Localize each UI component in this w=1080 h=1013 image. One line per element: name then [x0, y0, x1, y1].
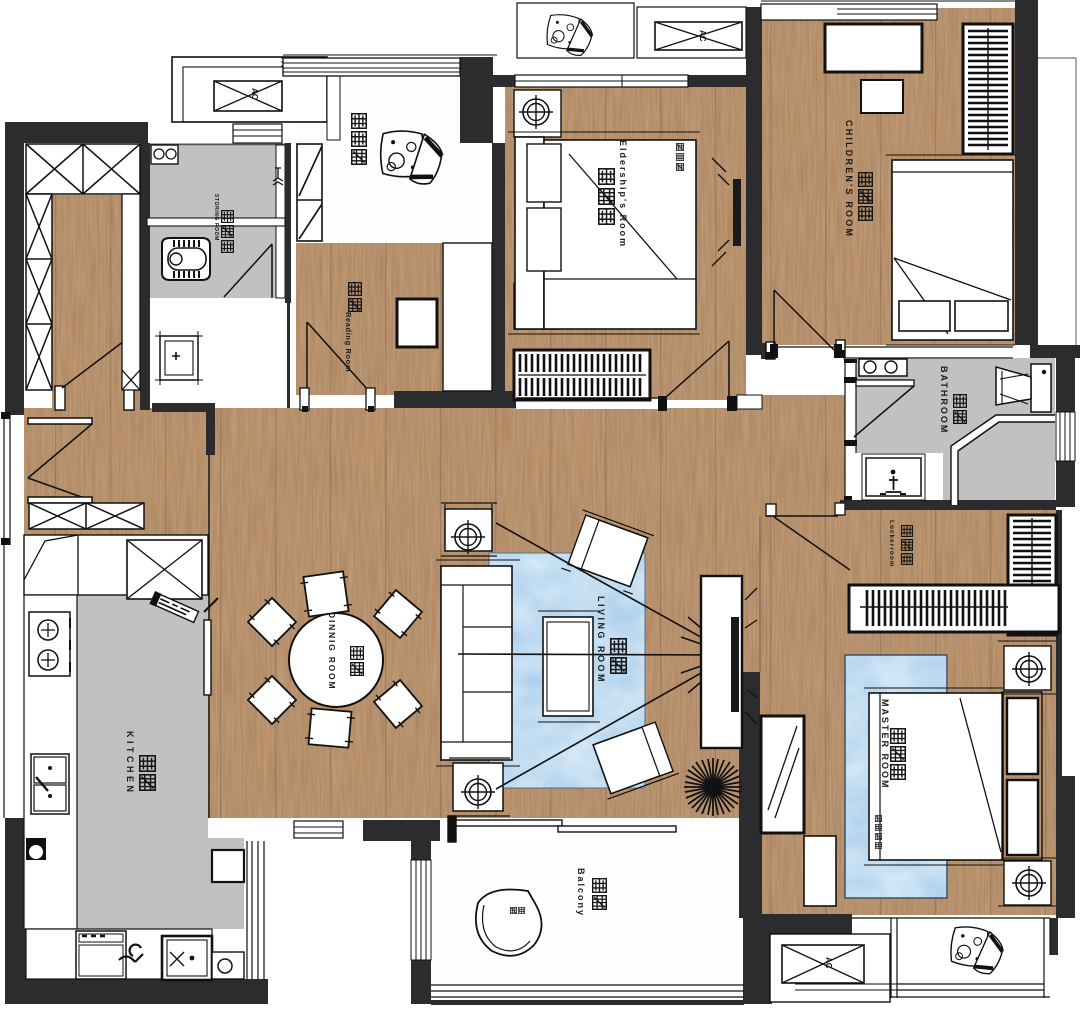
svg-text:Eldership's Room: Eldership's Room: [618, 140, 628, 248]
svg-text:Reading Room: Reading Room: [344, 312, 353, 372]
svg-text:AC: AC: [698, 30, 707, 42]
svg-text:MASTER ROOM: MASTER ROOM: [880, 699, 890, 790]
svg-text:KITCHEN: KITCHEN: [125, 731, 135, 796]
svg-text:LIVING ROOM: LIVING ROOM: [596, 596, 606, 684]
svg-text:DINNIG ROOM: DINNIG ROOM: [327, 612, 337, 690]
svg-text:Lockerroom: Lockerroom: [888, 520, 895, 568]
svg-text:Balcony: Balcony: [576, 868, 586, 917]
svg-text:STORING ROOM: STORING ROOM: [213, 194, 219, 241]
svg-text:CHILDREN'S ROOM: CHILDREN'S ROOM: [844, 120, 854, 238]
svg-text:AC: AC: [824, 957, 833, 969]
svg-text:BATHROOM: BATHROOM: [939, 366, 949, 434]
svg-text:AC: AC: [250, 88, 259, 100]
